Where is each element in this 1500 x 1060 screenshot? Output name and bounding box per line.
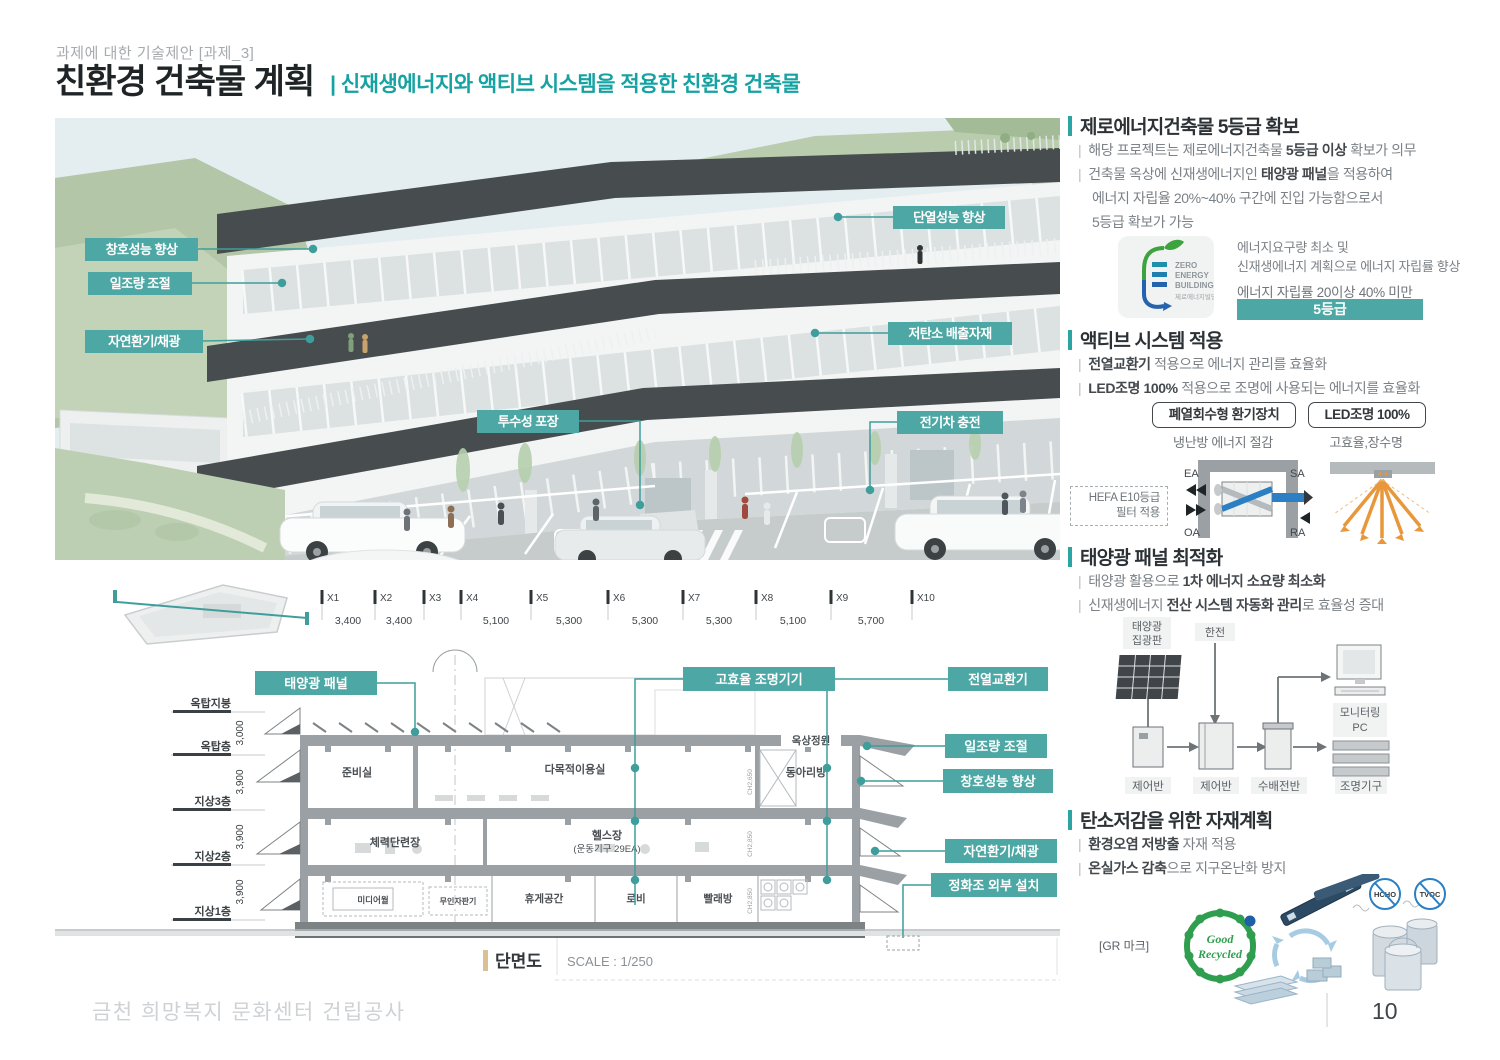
sheet-stack [1235,976,1297,1004]
bullet-text: 5등급 확보가 가능 [1092,214,1194,230]
grid-span: 5,100 [483,615,509,627]
cross-section-drawing: X1 X2 X3 X4 X5 X6 X7 X8 X9 X10 3,400 3,4… [55,560,1060,990]
hx-ea-label: EA [1184,468,1199,480]
floor-levels: 옥탑지붕 옥탑층 지상3층 지상2층 지상1층 3,000 3,900 3,90… [171,696,265,921]
section3-title: 태양광 패널 최적화 [1080,543,1222,570]
page-title: 친환경 건축물 계획 [55,62,314,102]
grid-span: 3,400 [386,615,412,627]
bullet-text: 확보가 의무 [1347,142,1416,158]
floor-label: 옥탑지붕 [191,696,231,710]
grid-label: X6 [613,593,626,604]
section3-header: 태양광 패널 최적화 [1068,543,1222,570]
ch-label: CH2,850 [747,831,754,857]
hx-sa-label: SA [1290,468,1305,480]
bullet-line: 에너지 자립율 20%~40% 구간에 진입 가능함으로서 [1078,186,1416,210]
section-caption: 단면도 SCALE : 1/250 [483,938,1060,980]
bullet-pipe: | [1078,597,1081,613]
ceiling-height-labels: CH2,650 CH2,850 CH2,850 [747,769,754,914]
floor-height: 3,900 [235,769,246,794]
caption-scale: SCALE : 1/250 [567,954,653,969]
ctrl1-label: 제어반 [1132,780,1164,793]
room-label: 미디어월 [357,895,388,905]
roof-garden-label: 옥상정원 [792,734,831,747]
section-callout-septic: 정화조 외부 설치 [949,878,1040,893]
pv-label-2: 집광판 [1132,634,1162,647]
dimension-grid: X1 X2 X3 X4 X5 X6 X7 X8 X9 X10 3,400 3,4… [321,590,936,627]
paint-cans [1373,919,1437,990]
bullet-text: 자재 적용 [1179,836,1236,852]
room-label: 체력단련장 [370,835,421,849]
building-section: 준비실 다목적이용실 동아리방 체력단련장 헬스장 (운동기구 29EA) 미디… [55,650,1060,938]
floor-label: 지상2층 [195,849,231,863]
pv-label-1: 태양광 [1132,620,1162,633]
grid-label: X9 [836,593,849,604]
floor-height: 3,000 [235,720,246,745]
solar-panel-icon [1116,655,1182,699]
floor-label: 옥탑층 [201,739,231,753]
grid-label: X4 [466,593,479,604]
room-label: 준비실 [342,765,372,779]
monitoring-pc-icon [1335,645,1385,695]
bullet-pipe: | [1078,860,1081,876]
section2-header: 액티브 시스템 적용 [1068,326,1222,353]
zeb-word: ZERO [1175,261,1197,270]
bullet-text: 신재생에너지 [1088,597,1166,613]
room-label: 휴게공간 [525,892,564,905]
bullet-line: |태양광 활용으로 1차 에너지 소요량 최소화 [1078,569,1384,593]
gr-mark-label: [GR 마크] [1099,939,1149,953]
floor-height: 3,900 [235,879,246,904]
bullet-pipe: | [1078,166,1081,182]
bullet-line: |신재생에너지 전산 시스템 자동화 관리로 효율성 증대 [1078,593,1384,617]
bullet-line: |건축물 옥상에 신재생에너지인 태양광 패널을 적용하여 [1078,162,1416,186]
lighting-label: 조명기구 [1340,780,1382,793]
ctrl2-label: 제어반 [1200,780,1232,793]
entrance-door-2 [910,450,954,500]
callout-permeable-paving: 투수성 포장 [477,410,579,433]
grid-label: X5 [536,593,549,604]
section-accent-bar [1068,116,1072,136]
bullet-text: 에너지 자립율 20%~40% 구간에 진입 가능함으로서 [1092,190,1383,206]
filter-line: HEFA E10등급 [1078,491,1160,506]
good-recycled-seal: Good Recycled [1185,909,1256,984]
heat-exchanger-diagram: EA SA OA RA [1180,452,1315,544]
room-label: 로비 [626,892,645,905]
grid-span: 5,300 [706,615,732,627]
bullet-line: |환경오염 저방출 자재 적용 [1078,832,1286,856]
zeb-word-kr: 제로에너지빌딩 [1175,292,1214,301]
bullet-pipe: | [1078,836,1081,852]
filter-line: 필터 적용 [1078,506,1160,521]
bullet-line: 5등급 확보가 가능 [1078,210,1416,234]
lighting-fixtures-icon [1333,741,1389,776]
zeb-note-line: 에너지요구량 최소 및 [1237,238,1460,257]
bullet-line: |LED조명 100% 적용으로 조명에 사용되는 에너지를 효율화 [1078,376,1420,400]
grid-label: X7 [688,593,701,604]
slide-title-row: 친환경 건축물 계획 | 신재생에너지와 액티브 시스템을 적용한 친환경 건축… [55,62,800,102]
kepco-label: 한전 [1205,626,1225,639]
bullet-bold: LED조명 100% [1088,380,1177,396]
section3-bullets: |태양광 활용으로 1차 에너지 소요량 최소화 |신재생에너지 전산 시스템 … [1078,569,1384,617]
room-label-sub: (운동기구 29EA) [573,844,640,855]
seal-word-good: Good [1207,932,1235,946]
bullet-text: 해당 프로젝트는 제로에너지건축물 [1088,142,1286,158]
section4-title: 탄소저감을 위한 자재계획 [1080,806,1272,833]
grid-span: 5,700 [858,615,884,627]
zeb-notes: 에너지요구량 최소 및 신재생에너지 계획으로 에너지 자립률 향상 [1237,238,1460,276]
grid-label: X2 [380,593,393,604]
section-callout-heat-exchanger: 전열교환기 [968,672,1028,687]
zeb-range-text: 에너지 자립률 20이상 40% 미만 [1237,281,1413,301]
bullet-pipe: | [1078,573,1081,589]
callout-window-performance: 창호성능 향상 [85,238,198,261]
grid-label: X3 [429,593,442,604]
block-pile [1307,958,1341,981]
bullet-text: 적용으로 조명에 사용되는 에너지를 효율화 [1178,380,1420,396]
led-lighting-box: LED조명 100% [1308,402,1426,428]
ch-label: CH2,650 [747,769,754,795]
hefa-filter-note: HEFA E10등급 필터 적용 [1070,486,1168,526]
section-callout-solar: 태양광 패널 [284,676,347,691]
room-label: 무인자판기 [440,896,477,906]
room-label: 빨래방 [704,892,733,905]
slide-page: 과제에 대한 기술제안 [과제_3] 친환경 건축물 계획 | 신재생에너지와 … [0,0,1500,1060]
bullet-text: 태양광 활용으로 [1088,573,1182,589]
section-accent-bar [1068,547,1072,567]
footer-separator [1326,993,1328,1027]
grid-label: X8 [761,593,774,604]
grid-label: X10 [917,593,935,604]
hx-ra-label: RA [1290,527,1306,539]
bullet-text: 건축물 옥상에 신재생에너지인 [1088,166,1261,182]
no-voc-badges: HCHO TVOC [1353,879,1445,911]
callout-insulation: 단열성능 향상 [893,206,1005,229]
led-caption: 고효율,장수명 [1308,432,1424,451]
recycled-materials: HCHO TVOC [1235,874,1445,1004]
callout-daylight-control: 일조량 조절 [88,272,192,295]
material-plan-illustration: [GR 마크] Good Recycled [1085,874,1460,1014]
hx-oa-label: OA [1184,527,1201,539]
section-accent-bar [1068,810,1072,830]
callout-ev-charging: 전기차 충전 [897,411,1003,434]
light-rays [1344,480,1420,538]
bullet-text: 로 효율성 증대 [1302,597,1384,613]
section2-bullets: |전열교환기 적용으로 에너지 관리를 효율화 |LED조명 100% 적용으로… [1078,352,1420,400]
section2-title: 액티브 시스템 적용 [1080,326,1222,353]
bullet-bold: 전열교환기 [1088,356,1150,372]
section1-bullets: |해당 프로젝트는 제로에너지건축물 5등급 이상 확보가 의무 |건축물 옥상… [1078,138,1416,234]
caption-title: 단면도 [495,952,542,971]
page-number: 10 [1372,998,1398,1025]
callout-natural-ventilation: 자연환기/채광 [85,330,203,353]
bullet-bold: 전산 시스템 자동화 관리 [1167,597,1302,613]
section1-header: 제로에너지건축물 5등급 확보 [1068,112,1299,139]
slide-eyebrow: 과제에 대한 기술제안 [과제_3] [56,42,254,63]
section-callout-daylight: 일조량 조절 [964,739,1027,754]
section4-bullets: |환경오염 저방출 자재 적용 |온실가스 감축으로 지구온난화 방지 [1078,832,1286,880]
section4-header: 탄소저감을 위한 자재계획 [1068,806,1272,833]
key-plan [113,585,309,644]
section1-title: 제로에너지건축물 5등급 확보 [1080,112,1299,139]
zeb-grade-bar: 5등급 [1237,299,1423,320]
pv-system-diagram: 태양광 집광판 한전 [1095,615,1445,800]
section-accent-bar [1068,330,1072,350]
bullet-pipe: | [1078,142,1081,158]
zeb-note-line: 신재생에너지 계획으로 에너지 자립률 향상 [1237,257,1460,276]
flow-arrows [1167,643,1323,747]
heat-recovery-caption: 냉난방 에너지 절감 [1152,432,1294,451]
bullet-bold: 1차 에너지 소요량 최소화 [1183,573,1326,589]
floor-label: 지상1층 [195,904,231,918]
section-callout-window: 창호성능 향상 [960,774,1035,789]
page-subtitle: | 신재생에너지와 액티브 시스템을 적용한 친환경 건축물 [330,68,800,102]
room-label: 헬스장 [592,828,622,842]
bullet-text: 을 적용하여 [1327,166,1393,182]
bullet-pipe: | [1078,356,1081,372]
floor-label: 지상3층 [195,794,231,808]
floor-height: 3,900 [235,824,246,849]
bullet-bold: 환경오염 저방출 [1088,836,1179,852]
grid-span: 5,300 [556,615,582,627]
bullet-line: |해당 프로젝트는 제로에너지건축물 5등급 이상 확보가 의무 [1078,138,1416,162]
heat-recovery-box: 폐열회수형 환기장치 [1152,402,1296,428]
bullet-bold: 5등급 이상 [1286,142,1347,158]
bullet-bold: 태양광 패널 [1261,166,1327,182]
zeb-logo-icon: ZERO ENERGY BUILDING 제로에너지빌딩 [1118,236,1214,318]
ch-label: CH2,850 [747,888,754,914]
room-label: 다목적이용실 [545,762,606,776]
grid-span: 3,400 [335,615,361,627]
grid-label: X1 [327,593,340,604]
monitor-label-1: 모니터링 [1340,706,1380,719]
zeb-word: ENERGY [1175,271,1209,280]
footer-project-name: 금천 희망복지 문화센터 건립공사 [92,996,405,1026]
led-downlight-diagram [1330,452,1435,544]
bullet-pipe: | [1078,380,1081,396]
monitor-label-2: PC [1352,722,1367,734]
room-label: 동아리방 [786,765,826,779]
section-callout-ventilation: 자연환기/채광 [963,844,1038,859]
callout-low-carbon-material: 저탄소 배출자재 [888,322,1012,345]
grid-span: 5,300 [632,615,658,627]
switchboard-label: 수배전반 [1258,780,1301,793]
grid-span: 5,100 [780,615,806,627]
bullet-line: |전열교환기 적용으로 에너지 관리를 효율화 [1078,352,1420,376]
zeb-logo-box: ZERO ENERGY BUILDING 제로에너지빌딩 [1118,236,1214,318]
bullet-text: 적용으로 에너지 관리를 효율화 [1151,356,1327,372]
zeb-word: BUILDING [1175,281,1214,290]
seal-word-recycled: Recycled [1197,947,1243,961]
section-callout-lighting: 고효율 조명기기 [715,672,802,687]
